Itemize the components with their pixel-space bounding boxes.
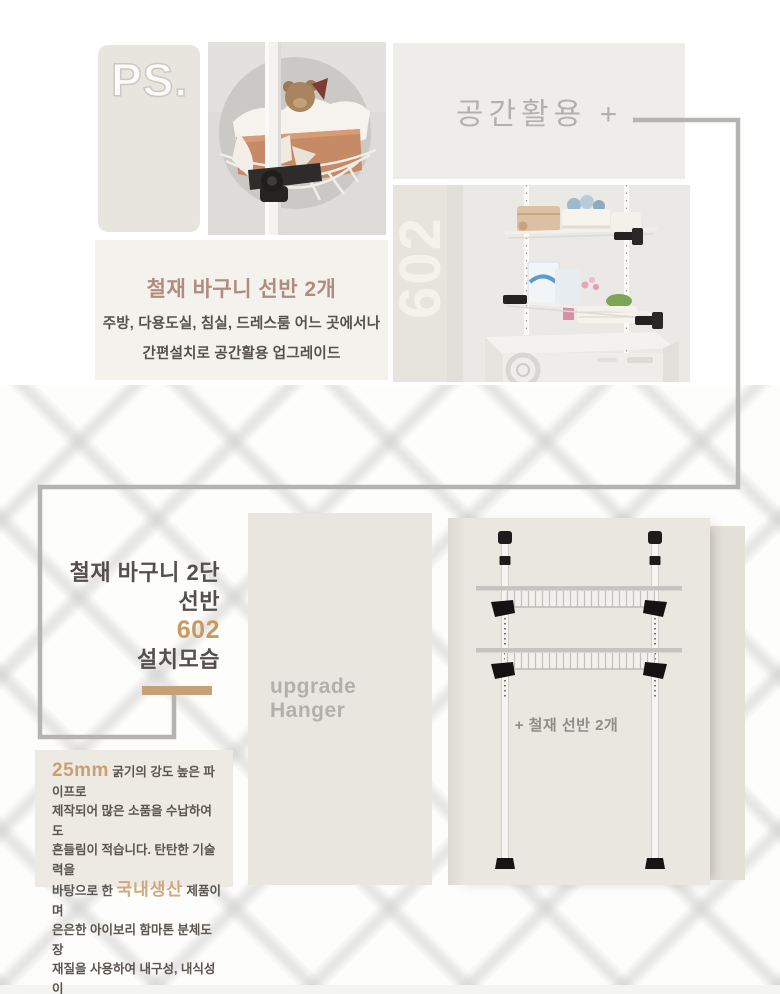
badge-602-strip: 602	[393, 185, 447, 382]
upgrade-hanger-panel: upgrade Hanger	[248, 513, 432, 885]
shelf-over-washer-photo	[447, 185, 690, 382]
install-headline-number: 602	[20, 616, 220, 645]
description-text-1: 굵기의 강도 높은 파이프로 제작되어 많은 소품을 수납하여도 흔들림이 적습…	[52, 765, 215, 898]
feature-box: 철재 바구니 선반 2개 주방, 다용도실, 침실, 드레스룸 어느 곳에서나 …	[95, 240, 388, 380]
install-headline-line3: 설치모습	[20, 645, 220, 674]
diagram-caption: + 철재 선반 2개	[448, 714, 685, 735]
hanger-diagram	[448, 518, 710, 885]
feature-line-1: 주방, 다용도실, 침실, 드레스룸 어느 곳에서나	[95, 312, 388, 333]
ps-badge-box: PS.	[98, 45, 200, 232]
description-text-2: 제품이며 은은한 아이보리 함마톤 분체도장 재질을 사용하여 내구성, 내식성…	[52, 884, 221, 994]
feature-title: 철재 바구니 선반 2개	[95, 273, 388, 303]
description-highlight-domestic: 국내생산	[116, 880, 183, 899]
hanger-diagram-panel	[448, 518, 710, 885]
install-headline-line1: 철재 바구니 2단	[20, 558, 220, 587]
badge-602: 602	[393, 193, 447, 341]
bottom-strip	[0, 985, 780, 994]
upgrade-hanger-label: upgrade Hanger	[248, 675, 432, 723]
space-usage-box: 공간활용 +	[393, 43, 685, 179]
description-highlight-25mm: 25mm	[52, 760, 109, 781]
install-headline-line2: 선반	[20, 587, 220, 616]
install-headline: 철재 바구니 2단 선반 602 설치모습	[20, 558, 220, 674]
headline-underline-bar	[142, 686, 212, 695]
space-usage-label: 공간활용 +	[456, 89, 622, 133]
description-box: 25mm 굵기의 강도 높은 파이프로 제작되어 많은 소품을 수납하여도 흔들…	[35, 750, 233, 887]
product-detail-page: PS.	[0, 0, 780, 994]
basket-closeup-photo	[208, 42, 386, 235]
basket-closeup-illustration	[208, 42, 386, 235]
shelf-over-washer-illustration	[447, 185, 690, 382]
feature-line-2: 간편설치로 공간활용 업그레이드	[95, 342, 388, 363]
ps-label: PS.	[111, 53, 188, 107]
